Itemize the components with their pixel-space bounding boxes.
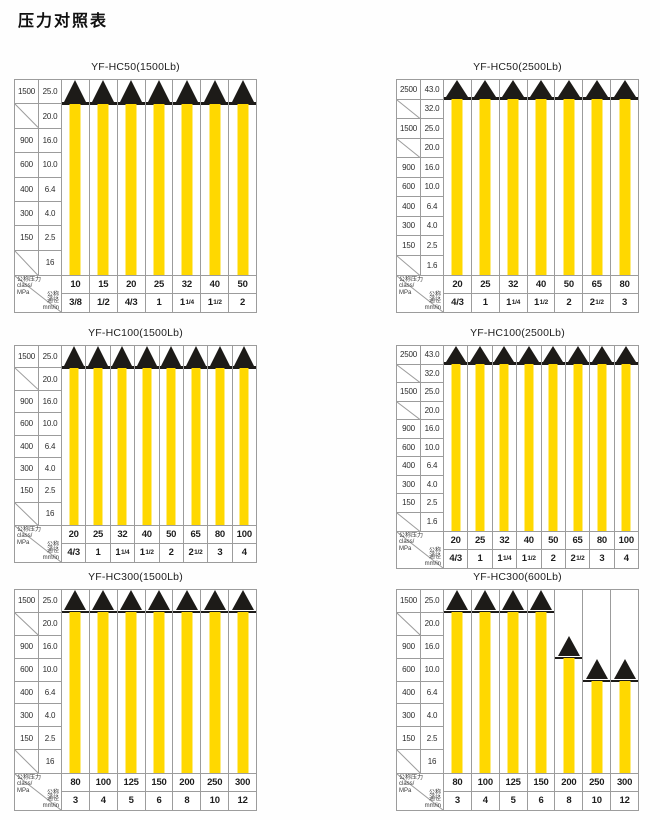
size-unit-label: 公称通径mm/in <box>425 790 441 809</box>
bar-triangle <box>232 590 254 610</box>
bar <box>167 368 176 526</box>
value-column: 502 <box>229 276 256 312</box>
mpa-cell: 2.5 <box>421 727 443 750</box>
value-column: 204/3 <box>444 276 472 312</box>
size-main: 1 <box>156 297 161 308</box>
size-value-cell: 3 <box>444 792 471 809</box>
mpa-cell: 16.0 <box>421 158 443 178</box>
bar-column <box>517 346 541 531</box>
bar-triangle <box>64 590 86 610</box>
bar-column <box>555 590 583 773</box>
mpa-cell: 16 <box>421 750 443 773</box>
chart-5: YF-HC300(1500Lb)150090060040030015025.02… <box>14 570 257 811</box>
mpa-cell: 10.0 <box>421 178 443 198</box>
class-value-cell: 250 <box>583 774 610 792</box>
axis-bottom: 公称压力class/MPa公称通径mm/in803100412551506200… <box>15 774 256 810</box>
value-column: 251 <box>472 276 500 312</box>
pressure-class-cell: 150 <box>15 226 38 250</box>
size-frac: 1/2 <box>194 549 202 556</box>
bar-triangle <box>148 590 170 610</box>
chart-grid: 2500150090060040030015043.032.025.020.01… <box>397 346 638 532</box>
chart-2: YF-HC50(2500Lb)2500150090060040030015043… <box>396 60 639 313</box>
header-line: mm/in <box>43 803 59 809</box>
bar <box>480 612 491 773</box>
mpa-cell: 16 <box>39 503 61 525</box>
size-value-cell: 8 <box>555 792 582 809</box>
bar-column <box>500 590 528 773</box>
chart-title: YF-HC100(2500Lb) <box>396 326 639 340</box>
size-main: 10 <box>592 795 602 806</box>
mpa-cell: 6.4 <box>421 197 443 217</box>
bar <box>98 104 109 276</box>
class-value-cell: 15 <box>90 276 117 294</box>
size-main: 4/3 <box>449 553 462 564</box>
size-value-cell: 3 <box>208 544 231 561</box>
size-frac: 1/2 <box>213 299 221 306</box>
mpa-axis: 25.020.016.010.06.44.02.516 <box>39 346 62 525</box>
bar <box>154 612 165 773</box>
catalog-page: 压力对照表 YF-HC50(1500Lb)1500900600400300150… <box>0 0 660 820</box>
value-column: 502 <box>160 526 184 562</box>
header-line: MPa <box>399 290 423 296</box>
pressure-class-cell: 600 <box>15 413 38 435</box>
diagonal-line <box>15 104 38 127</box>
value-column: 4011/2 <box>135 526 159 562</box>
class-value-cell: 65 <box>184 526 207 544</box>
size-value-cell: 4/3 <box>118 294 145 311</box>
size-frac: 1/2 <box>576 555 584 562</box>
value-column: 803 <box>590 532 614 568</box>
size-unit-label: 公称通径mm/in <box>425 548 441 567</box>
pressure-class-cell: 900 <box>397 158 420 178</box>
bar <box>126 104 137 276</box>
diagonal-cell <box>15 750 38 773</box>
pressure-unit-label: 公称压力class/MPa <box>17 277 41 296</box>
size-value-cell: 5 <box>118 792 145 809</box>
class-value-cell: 80 <box>208 526 231 544</box>
bar <box>142 368 151 526</box>
size-main: 8 <box>566 795 571 806</box>
size-main: 1/2 <box>97 297 110 308</box>
bar-triangle <box>614 80 636 97</box>
bar-triangle <box>502 590 524 610</box>
class-value-cell: 50 <box>229 276 256 294</box>
class-value-cell: 32 <box>500 276 527 294</box>
class-value-cell: 40 <box>528 276 555 294</box>
pressure-class-cell: 900 <box>15 391 38 413</box>
value-column: 3211/4 <box>111 526 135 562</box>
class-value-cell: 80 <box>62 774 89 792</box>
bar <box>237 612 248 773</box>
class-value-cell: 100 <box>615 532 638 550</box>
bar <box>476 364 485 531</box>
value-column: 1004 <box>233 526 256 562</box>
size-value-cell: 2 <box>229 294 256 311</box>
pressure-class-cell: 600 <box>397 439 420 458</box>
mpa-cell: 43.0 <box>421 80 443 100</box>
mpa-cell: 20.0 <box>421 613 443 636</box>
mpa-cell: 4.0 <box>421 217 443 237</box>
bar-column <box>184 346 208 525</box>
bar-triangle <box>234 346 254 366</box>
class-value-cell: 25 <box>468 532 491 550</box>
diagonal-line <box>15 251 38 275</box>
chart-table: 2500150090060040030015043.032.025.020.01… <box>396 79 639 313</box>
chart-table: 150090060040030015025.020.016.010.06.44.… <box>396 589 639 811</box>
bar <box>563 658 574 773</box>
class-value-cell: 20 <box>118 276 145 294</box>
pressure-class-cell: 300 <box>397 704 420 727</box>
mpa-cell: 16 <box>39 750 61 773</box>
bar-triangle <box>446 80 468 97</box>
size-unit-label: 公称通径mm/in <box>43 790 59 809</box>
bar-triangle <box>161 346 181 366</box>
size-main: 4/3 <box>67 547 80 558</box>
size-main: 10 <box>210 795 220 806</box>
bar-triangle <box>558 636 580 656</box>
pressure-unit-label: 公称压力class/MPa <box>17 527 41 546</box>
bar-triangle <box>112 346 132 366</box>
size-main: 1 <box>522 553 527 564</box>
diagonal-line <box>15 368 38 389</box>
bar-triangle <box>446 590 468 610</box>
diagonal-cell <box>397 513 420 532</box>
value-column: 803 <box>62 774 90 810</box>
pressure-class-cell: 150 <box>15 480 38 502</box>
mpa-cell: 6.4 <box>39 436 61 458</box>
size-value-cell: 11/4 <box>493 550 516 567</box>
bar-column <box>173 80 201 275</box>
bar-column <box>233 346 256 525</box>
size-main: 2 <box>566 297 571 308</box>
diagonal-line <box>397 139 420 158</box>
size-unit-label: 公称通径mm/in <box>43 542 59 561</box>
mpa-cell: 20.0 <box>39 104 61 128</box>
size-value-cell: 4 <box>472 792 499 809</box>
class-value-cell: 100 <box>233 526 256 544</box>
bar <box>500 364 509 531</box>
axis-bottom: 公称压力class/MPa公称通径mm/in204/32513211/44011… <box>15 526 256 562</box>
size-value-cell: 4 <box>90 792 117 809</box>
bar <box>524 364 533 531</box>
pressure-class-cell: 400 <box>397 457 420 476</box>
bar-column <box>472 590 500 773</box>
size-main: 2 <box>551 553 556 564</box>
size-value-cell: 10 <box>583 792 610 809</box>
diagonal-cell <box>397 365 420 384</box>
pressure-unit-label: 公称压力class/MPa <box>399 277 423 296</box>
mpa-cell: 16.0 <box>39 636 61 659</box>
mpa-cell: 2.5 <box>39 226 61 250</box>
pressure-class-cell: 600 <box>397 178 420 198</box>
bar-column <box>201 80 229 275</box>
diagonal-line <box>397 100 420 119</box>
bar-column <box>590 346 614 531</box>
pressure-unit-label: 公称压力class/MPa <box>399 775 423 794</box>
value-column: 30012 <box>229 774 256 810</box>
bar-triangle <box>204 590 226 610</box>
diagonal-cell <box>397 256 420 276</box>
class-value-cell: 80 <box>611 276 638 294</box>
mpa-cell: 16.0 <box>421 636 443 659</box>
bar-triangle <box>586 80 608 97</box>
mpa-cell: 6.4 <box>39 178 61 202</box>
mpa-cell: 20.0 <box>39 368 61 390</box>
bar-column <box>528 80 556 275</box>
value-column: 25010 <box>583 774 611 810</box>
size-main: 1 <box>483 297 488 308</box>
pressure-class-axis: 1500900600400300150 <box>15 80 39 275</box>
bar <box>181 104 192 276</box>
size-frac: 1/2 <box>527 555 535 562</box>
size-frac: 1/4 <box>512 299 520 306</box>
mpa-cell: 16.0 <box>39 391 61 413</box>
bar-column <box>472 80 500 275</box>
bar-column <box>493 346 517 531</box>
chart-table: 2500150090060040030015043.032.025.020.01… <box>396 345 639 569</box>
class-value-cell: 32 <box>111 526 134 544</box>
header-line: mm/in <box>425 305 441 311</box>
value-column: 4011/2 <box>201 276 229 312</box>
size-main: 1 <box>140 547 145 558</box>
bar-triangle <box>92 590 114 610</box>
bar-column <box>444 590 472 773</box>
bar <box>536 612 547 773</box>
class-value-cell: 50 <box>555 276 582 294</box>
class-value-cell: 300 <box>229 774 256 792</box>
class-value-cell: 100 <box>90 774 117 792</box>
bar-column <box>135 346 159 525</box>
bar <box>619 99 630 275</box>
size-main: 3 <box>622 297 627 308</box>
bar-triangle <box>446 346 466 362</box>
mpa-cell: 32.0 <box>421 365 443 384</box>
mpa-cell: 1.6 <box>421 256 443 276</box>
size-main: 4 <box>624 553 629 564</box>
chart-1: YF-HC50(1500Lb)150090060040030015025.020… <box>14 60 257 313</box>
bar-column <box>90 80 118 275</box>
size-main: 2 <box>240 297 245 308</box>
axis-header-cell: 公称压力class/MPa公称通径mm/in <box>15 774 62 810</box>
mpa-cell: 2.5 <box>421 236 443 256</box>
class-value-cell: 40 <box>517 532 540 550</box>
size-value-cell: 10 <box>201 792 228 809</box>
pressure-class-cell: 300 <box>15 458 38 480</box>
value-column: 6521/2 <box>566 532 590 568</box>
bar <box>563 99 574 275</box>
bar <box>94 368 103 526</box>
pressure-class-cell: 2500 <box>397 346 420 365</box>
class-value-cell: 25 <box>472 276 499 294</box>
pressure-class-cell: 300 <box>397 476 420 495</box>
bar <box>619 681 630 773</box>
bar <box>452 612 463 773</box>
bar-triangle <box>470 346 490 362</box>
axis-bottom: 公称压力class/MPa公称通径mm/in103/8151/2204/3251… <box>15 276 256 312</box>
header-line: MPa <box>17 540 41 546</box>
bar-column <box>62 346 86 525</box>
bar <box>126 612 137 773</box>
bar <box>209 104 220 276</box>
bar <box>452 99 463 275</box>
chart-grid: 150090060040030015025.020.016.010.06.44.… <box>397 590 638 774</box>
diagonal-line <box>397 513 420 532</box>
pressure-class-cell: 150 <box>15 727 38 750</box>
mpa-cell: 25.0 <box>421 383 443 402</box>
pressure-class-cell: 150 <box>397 494 420 513</box>
value-column: 30012 <box>611 774 638 810</box>
size-main: 3/8 <box>69 297 82 308</box>
value-column: 251 <box>86 526 110 562</box>
size-value-cell: 11/2 <box>135 544 158 561</box>
size-main: 1 <box>96 547 101 558</box>
mpa-cell: 16.0 <box>421 420 443 439</box>
bar-triangle <box>64 346 84 366</box>
bar-triangle <box>186 346 206 366</box>
size-frac: 1/2 <box>145 549 153 556</box>
chart-3: YF-HC100(1500Lb)150090060040030015025.02… <box>14 326 257 563</box>
size-frac: 1/4 <box>503 555 511 562</box>
pressure-class-cell: 400 <box>397 197 420 217</box>
pressure-unit-label: 公称压力class/MPa <box>399 533 423 552</box>
mpa-cell: 2.5 <box>39 480 61 502</box>
diagonal-cell <box>15 503 38 525</box>
size-main: 2 <box>189 547 194 558</box>
class-value-cell: 125 <box>118 774 145 792</box>
diagonal-cell <box>397 613 420 636</box>
bar-triangle <box>543 346 563 362</box>
bar-column <box>146 590 174 773</box>
size-value-cell: 6 <box>146 792 173 809</box>
chart-table: 150090060040030015025.020.016.010.06.44.… <box>14 589 257 811</box>
bar-triangle <box>474 590 496 610</box>
value-column: 1255 <box>118 774 146 810</box>
bar <box>69 368 78 526</box>
size-value-cell: 4/3 <box>444 550 467 567</box>
size-value-cell: 21/2 <box>184 544 207 561</box>
pressure-class-cell: 600 <box>397 659 420 682</box>
size-value-cell: 4 <box>233 544 256 561</box>
mpa-cell: 6.4 <box>421 457 443 476</box>
size-main: 1 <box>208 297 213 308</box>
bar <box>480 99 491 275</box>
pressure-class-cell: 400 <box>397 682 420 705</box>
mpa-cell: 25.0 <box>39 346 61 368</box>
bar-column <box>444 80 472 275</box>
bar-triangle <box>64 80 86 102</box>
size-value-cell: 3 <box>62 792 89 809</box>
diagonal-line <box>397 613 420 635</box>
pressure-class-cell: 2500 <box>397 80 420 100</box>
header-line: mm/in <box>43 555 59 561</box>
bar <box>591 681 602 773</box>
pressure-class-cell: 400 <box>15 436 38 458</box>
class-value-cell: 20 <box>444 276 471 294</box>
class-value-cell: 150 <box>146 774 173 792</box>
value-column: 251 <box>146 276 174 312</box>
chart-grid: 150090060040030015025.020.016.010.06.44.… <box>15 590 256 774</box>
bar-column <box>173 590 201 773</box>
mpa-cell: 6.4 <box>39 682 61 705</box>
value-column: 1506 <box>146 774 174 810</box>
axis-header-cell: 公称压力class/MPa公称通径mm/in <box>397 276 444 312</box>
size-main: 1 <box>506 297 511 308</box>
value-column: 803 <box>444 774 472 810</box>
chart-title: YF-HC100(1500Lb) <box>14 326 257 340</box>
class-value-cell: 20 <box>62 526 85 544</box>
bar <box>70 612 81 773</box>
pressure-class-axis: 1500900600400300150 <box>15 346 39 525</box>
bar-triangle <box>120 590 142 610</box>
pressure-class-cell: 1500 <box>397 590 420 613</box>
diagonal-cell <box>15 368 38 390</box>
mpa-cell: 2.5 <box>421 494 443 513</box>
size-main: 12 <box>238 795 248 806</box>
size-main: 4/3 <box>125 297 138 308</box>
value-column: 25010 <box>201 774 229 810</box>
bar-column <box>118 590 146 773</box>
bar-triangle <box>176 80 198 102</box>
size-frac: 1/2 <box>595 299 603 306</box>
value-column: 2008 <box>173 774 201 810</box>
class-value-cell: 65 <box>566 532 589 550</box>
bar <box>536 99 547 275</box>
pressure-class-cell: 1500 <box>397 383 420 402</box>
pressure-class-cell: 600 <box>15 659 38 682</box>
plot-area <box>444 80 638 275</box>
size-main: 6 <box>156 795 161 806</box>
bar-column <box>583 590 611 773</box>
bar-column <box>229 590 256 773</box>
class-value-cell: 40 <box>201 276 228 294</box>
size-main: 4/3 <box>451 297 464 308</box>
value-column: 204/3 <box>62 526 86 562</box>
chart-title: YF-HC50(2500Lb) <box>396 60 639 74</box>
bar-triangle <box>558 80 580 97</box>
pressure-class-axis: 25001500900600400300150 <box>397 346 421 531</box>
bar-triangle <box>88 346 108 366</box>
mpa-cell: 43.0 <box>421 346 443 365</box>
pressure-class-cell: 900 <box>397 420 420 439</box>
size-value-cell: 2 <box>160 544 183 561</box>
class-value-cell: 250 <box>201 774 228 792</box>
bar-triangle <box>614 659 636 679</box>
bar-triangle <box>568 346 588 362</box>
class-value-cell: 50 <box>160 526 183 544</box>
bar-column <box>201 590 229 773</box>
class-value-cell: 65 <box>583 276 610 294</box>
size-main: 5 <box>511 795 516 806</box>
bar-triangle <box>530 590 552 610</box>
size-value-cell: 5 <box>500 792 527 809</box>
header-line: MPa <box>17 788 41 794</box>
bar-triangle <box>616 346 636 362</box>
mpa-cell: 10.0 <box>421 439 443 458</box>
mpa-cell: 25.0 <box>39 590 61 613</box>
class-value-cell: 200 <box>173 774 200 792</box>
bar <box>118 368 127 526</box>
mpa-cell: 4.0 <box>421 704 443 727</box>
size-main: 6 <box>538 795 543 806</box>
header-line: MPa <box>17 290 41 296</box>
bar-triangle <box>210 346 230 366</box>
diagonal-line <box>397 402 420 420</box>
mpa-cell: 2.5 <box>39 727 61 750</box>
size-value-cell: 8 <box>173 792 200 809</box>
bar-column <box>111 346 135 525</box>
bar-column <box>86 346 110 525</box>
bar-triangle <box>232 80 254 102</box>
